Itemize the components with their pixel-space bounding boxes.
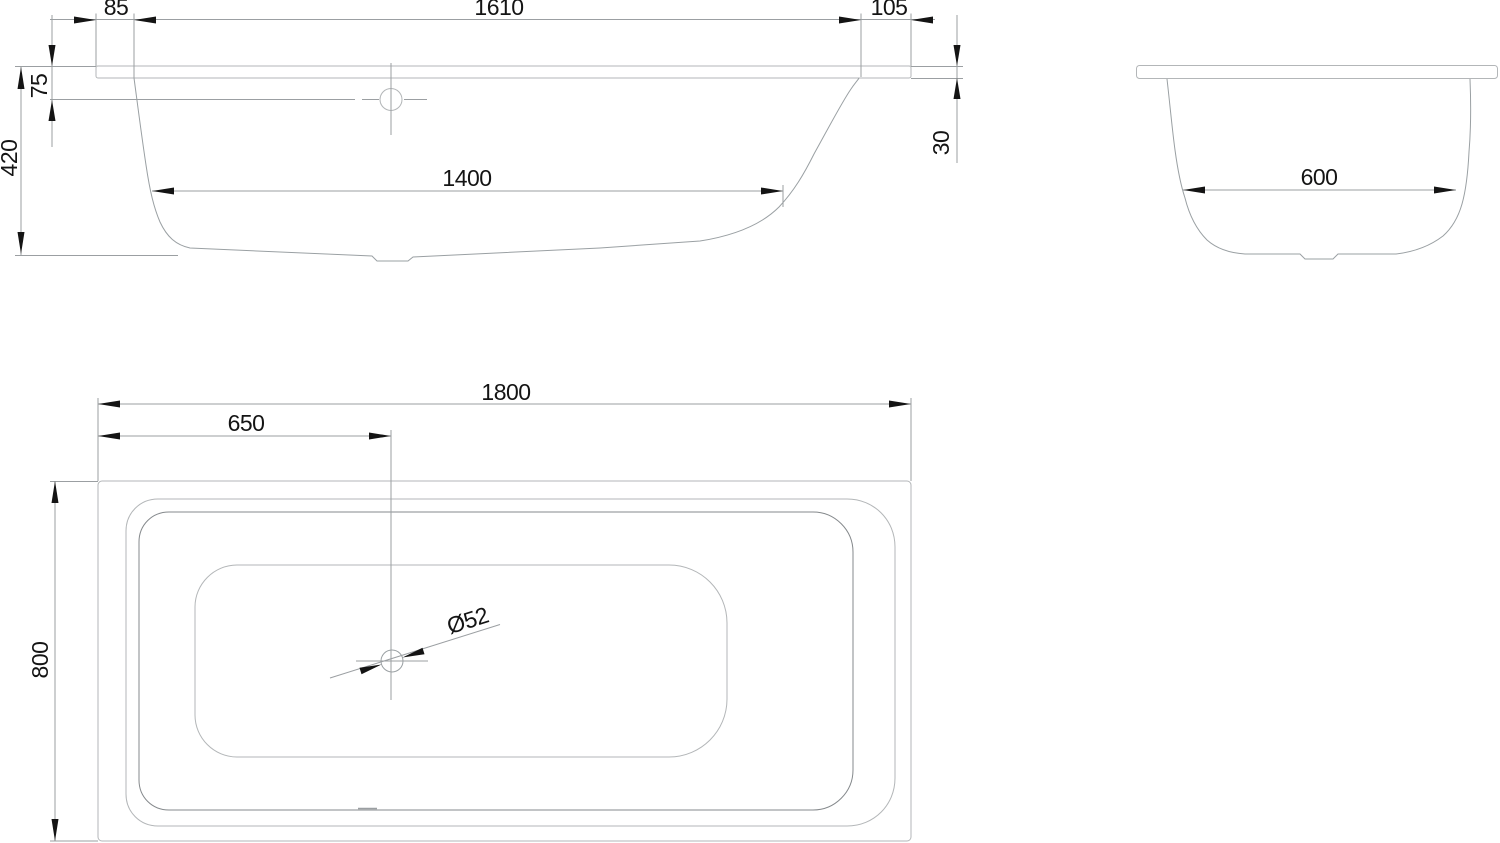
dim-label-bottom-length: 1400 <box>442 165 491 191</box>
plan-view: Ø52 1800 650 800 <box>27 379 911 841</box>
dim-arrow <box>360 665 382 675</box>
dim-1800-extensions <box>98 398 911 481</box>
drawing-sheet: 85 1610 105 75 420 1400 30 600 <box>0 0 1500 843</box>
drain-diameter-leader-line <box>330 625 500 679</box>
dim-arrow <box>52 819 59 841</box>
dim-label-overall-width: 800 <box>27 642 53 679</box>
end-rim-slab <box>1137 66 1498 79</box>
plan-inner-wall-edge <box>139 512 853 810</box>
dim-arrow <box>369 433 391 440</box>
dim-arrow <box>49 100 56 121</box>
dim-arrow <box>1183 187 1205 194</box>
dim-label-rim-height: 30 <box>928 131 954 156</box>
dim-label-bottom-width: 600 <box>1301 164 1338 190</box>
dim-label-rim-flat-right: 105 <box>871 0 908 20</box>
plan-outer-edge <box>98 481 911 841</box>
dim-arrow <box>839 17 861 24</box>
dim-arrow <box>761 188 783 195</box>
dim-arrow <box>889 401 911 408</box>
side-view: 85 1610 105 75 420 1400 30 <box>0 0 963 261</box>
dim-arrow <box>52 481 59 503</box>
side-top-extension-lines <box>96 14 911 79</box>
side-rim-slab <box>96 66 911 78</box>
technical-drawing-canvas: 85 1610 105 75 420 1400 30 600 <box>0 0 1500 843</box>
dim-30-extensions <box>911 67 963 79</box>
dim-800-extensions <box>50 482 98 842</box>
side-shell-outline <box>134 78 859 261</box>
dim-label-overflow-drop: 75 <box>26 74 52 99</box>
dim-arrow <box>954 45 961 66</box>
dim-label-top-opening: 1610 <box>474 0 523 20</box>
dim-label-drain-diameter: Ø52 <box>444 602 492 639</box>
plan-rim-roll-edge <box>126 499 895 826</box>
dim-label-overall-length: 1800 <box>481 379 530 405</box>
dim-arrow <box>134 17 156 24</box>
dim-arrow <box>18 67 25 89</box>
dim-arrow <box>98 433 120 440</box>
dim-arrow <box>152 188 174 195</box>
dim-arrow <box>954 78 961 99</box>
dim-label-rim-flat-left: 85 <box>104 0 129 20</box>
end-view: 600 <box>1137 66 1498 260</box>
dim-arrow <box>18 232 25 254</box>
plan-basin-floor-edge <box>195 565 727 757</box>
dim-arrow <box>403 648 425 658</box>
dim-label-drain-offset: 650 <box>228 410 265 436</box>
dim-arrow <box>1434 187 1456 194</box>
dim-label-overall-height: 420 <box>0 140 22 177</box>
dim-arrow <box>74 17 96 24</box>
dim-arrow <box>911 17 933 24</box>
dim-arrow <box>49 45 56 66</box>
dim-arrow <box>98 401 120 408</box>
